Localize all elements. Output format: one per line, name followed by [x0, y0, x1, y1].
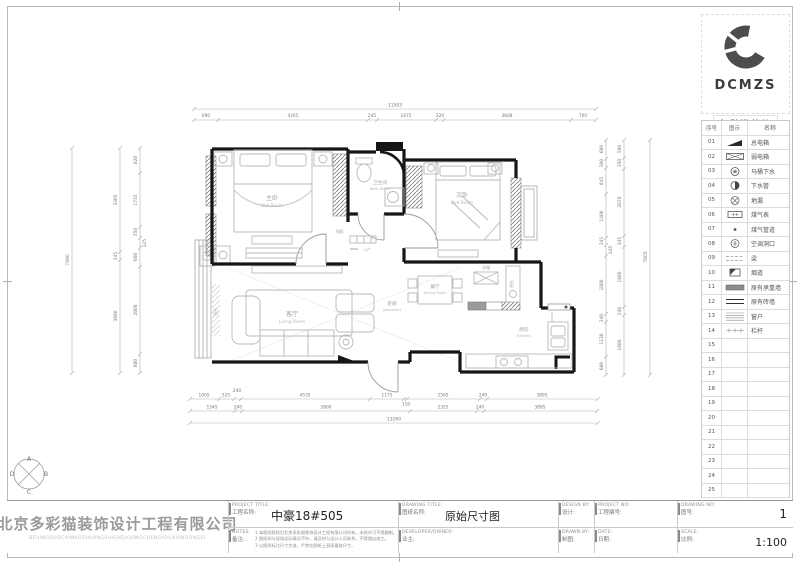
corridor-label: 走廊: [387, 300, 397, 307]
kitchen-flue: [556, 357, 570, 369]
svg-text:2070: 2070: [617, 196, 623, 207]
svg-text:5800: 5800: [321, 405, 332, 411]
svg-text:2800: 2800: [133, 304, 139, 315]
svg-text:3608: 3608: [502, 113, 513, 119]
project-column: PROJECT TITLE: 工程名称: 中豪18#505 NOTES: 备注:…: [228, 501, 398, 553]
sheet-column: DRAWING NO: 图号: 1 SCALE: 比例: 1:100: [677, 501, 793, 553]
svg-text:3895: 3895: [537, 393, 548, 399]
svg-text:700: 700: [579, 113, 587, 119]
svg-text:1005: 1005: [199, 393, 210, 399]
svg-text:3880: 3880: [113, 310, 119, 321]
svg-text:11503: 11503: [388, 103, 402, 109]
floorplan-sheet: { "logo": { "brand": "DCMZS", "brand_cn"…: [0, 0, 800, 565]
project-no-cell: PROJECT NO: 工程编号:: [595, 501, 677, 527]
svg-text:240: 240: [479, 393, 487, 399]
project-name: 中豪18#505: [271, 507, 343, 524]
dining-furniture: [408, 276, 462, 304]
window-hatches: [206, 154, 521, 256]
shoe-cabinet-label: 鞋柜: [336, 229, 344, 234]
svg-text:690: 690: [202, 113, 210, 119]
sightline-cross: [228, 268, 460, 362]
second-bedroom-label: 次卧: [456, 191, 468, 199]
designer-column: DESIGN BY: 设计: DRAWN BY: 制图:: [558, 501, 594, 553]
svg-text:325: 325: [142, 239, 148, 247]
svg-text:350: 350: [133, 228, 139, 236]
living-room-label: 客厅: [286, 310, 298, 318]
svg-text:4535: 4535: [300, 393, 311, 399]
second-bedroom-furniture: [424, 162, 502, 257]
kitchen-label: 厨房: [519, 326, 529, 333]
svg-text:1880: 1880: [617, 271, 623, 282]
bar-label: 吧台: [509, 280, 514, 288]
svg-text:7805: 7805: [643, 251, 649, 263]
living-room-furniture: [232, 266, 374, 356]
master-wardrobe: [333, 154, 347, 216]
svg-text:245: 245: [113, 252, 119, 260]
threshold-wedge: [338, 355, 354, 361]
title-block: 北京多彩猫装饰设计工程有限公司 BEIJINGDUOCAIMAOZHUANGSH…: [7, 500, 793, 553]
svg-text:Bed Room: Bed Room: [451, 200, 473, 206]
svg-text:240: 240: [617, 307, 623, 315]
svg-text:600: 600: [599, 362, 605, 370]
svg-text:220: 220: [436, 113, 444, 119]
svg-text:Bath Room: Bath Room: [370, 186, 391, 191]
svg-text:240: 240: [233, 388, 241, 394]
bathroom-label: 卫生间: [373, 179, 388, 186]
drawing-name: 原始尺寸图: [445, 508, 500, 524]
company-pinyin: BEIJINGDUOCAIMAOZHUANGSHISHEJIGONGCHENGY…: [29, 536, 205, 541]
svg-text:1545: 1545: [207, 405, 218, 411]
date-cell: DATE: 日期:: [595, 527, 677, 554]
svg-text:600: 600: [133, 359, 139, 367]
svg-text:1880: 1880: [617, 339, 623, 350]
svg-text:600: 600: [133, 253, 139, 261]
company-block: 北京多彩猫装饰设计工程有限公司 BEIJINGDUOCAIMAOZHUANGSH…: [7, 501, 228, 553]
fridge-label: 冰箱: [482, 264, 490, 270]
svg-text:350: 350: [617, 159, 623, 167]
svg-text:245: 245: [368, 113, 376, 119]
drawing-title-cell: DRAWING TITLE: 图纸名称: 原始尺寸图: [399, 501, 558, 527]
dining-room-label: 餐厅: [430, 283, 440, 290]
svg-text:Living Room: Living Room: [279, 319, 305, 325]
svg-text:2565: 2565: [438, 393, 449, 399]
svg-text:820: 820: [133, 156, 139, 164]
project-title-cell: PROJECT TITLE: 工程名称: 中豪18#505: [229, 501, 398, 527]
svg-text:Dining Room: Dining Room: [424, 291, 447, 295]
design-by-cell: DESIGN BY: 设计:: [559, 501, 594, 527]
kitchen-slider-door: [548, 304, 570, 310]
svg-text:345: 345: [617, 237, 623, 245]
drawing-no-cell: DRAWING NO: 图号: 1: [678, 501, 793, 527]
svg-text:1735: 1735: [133, 194, 139, 205]
svg-text:Kitchen: Kitchen: [517, 334, 531, 338]
shower-enclosure: [380, 152, 404, 176]
svg-text:110: 110: [402, 402, 410, 408]
notes-lines: 1 本图纸版权归北京多彩猫装饰设计工程有限公司所有，未经许可不得翻制。 2 图纸…: [255, 530, 397, 550]
svg-text:240: 240: [476, 405, 484, 411]
svg-text:560: 560: [617, 145, 623, 153]
svg-text:4265: 4265: [288, 113, 299, 119]
owner-cell: DEVELOPER/OWNER: 业主:: [399, 527, 558, 554]
svg-text:345: 345: [608, 246, 614, 254]
svg-text:240: 240: [599, 314, 605, 322]
bar-counter-blocks: [468, 302, 520, 310]
svg-text:1400: 1400: [599, 210, 605, 221]
svg-text:1130: 1130: [599, 333, 605, 344]
number-column: PROJECT NO: 工程编号: DATE: 日期:: [594, 501, 677, 553]
notes-cell: NOTES: 备注: 1 本图纸版权归北京多彩猫装饰设计工程有限公司所有，未经许…: [229, 527, 398, 554]
svg-text:13260: 13260: [387, 417, 401, 423]
dimension-lines: [70, 107, 652, 425]
master-bedroom-label: 主卧: [266, 194, 278, 202]
svg-text:245: 245: [599, 237, 605, 245]
svg-text:2325: 2325: [438, 405, 449, 411]
svg-text:240: 240: [234, 405, 242, 411]
door-swings: [296, 214, 438, 392]
entry-door-panel: [376, 142, 403, 151]
floor-plan-drawing: 主卧 Bed Room 卫生间 Bath Room 次卧 Bed Room 客厅…: [0, 0, 800, 565]
svg-text:600: 600: [599, 145, 605, 153]
balcony-label: 阳台: [212, 308, 218, 316]
drawn-by-cell: DRAWN BY: 制图:: [559, 527, 594, 554]
svg-text:pavement: pavement: [383, 308, 402, 312]
svg-text:1175: 1175: [382, 393, 393, 399]
svg-text:Bed Room: Bed Room: [261, 203, 283, 209]
svg-text:300: 300: [599, 159, 605, 167]
drawing-column: DRAWING TITLE: 图纸名称: 原始尺寸图 DEVELOPER/OWN…: [398, 501, 558, 553]
second-wardrobe: [406, 166, 422, 208]
svg-text:845: 845: [599, 177, 605, 185]
svg-text:1675: 1675: [401, 113, 412, 119]
svg-text:7490: 7490: [65, 254, 71, 266]
entry-label: 入户: [363, 247, 371, 252]
drawing-no-value: 1: [779, 507, 787, 521]
svg-text:3895: 3895: [535, 405, 546, 411]
svg-text:525: 525: [222, 393, 230, 399]
svg-text:1880: 1880: [599, 279, 605, 290]
company-name: 北京多彩猫装饰设计工程有限公司: [0, 513, 238, 534]
bay-window: [521, 186, 537, 240]
svg-text:3365: 3365: [113, 194, 119, 205]
scale-cell: SCALE: 比例: 1:100: [678, 527, 793, 554]
scale-value: 1:100: [755, 536, 787, 549]
